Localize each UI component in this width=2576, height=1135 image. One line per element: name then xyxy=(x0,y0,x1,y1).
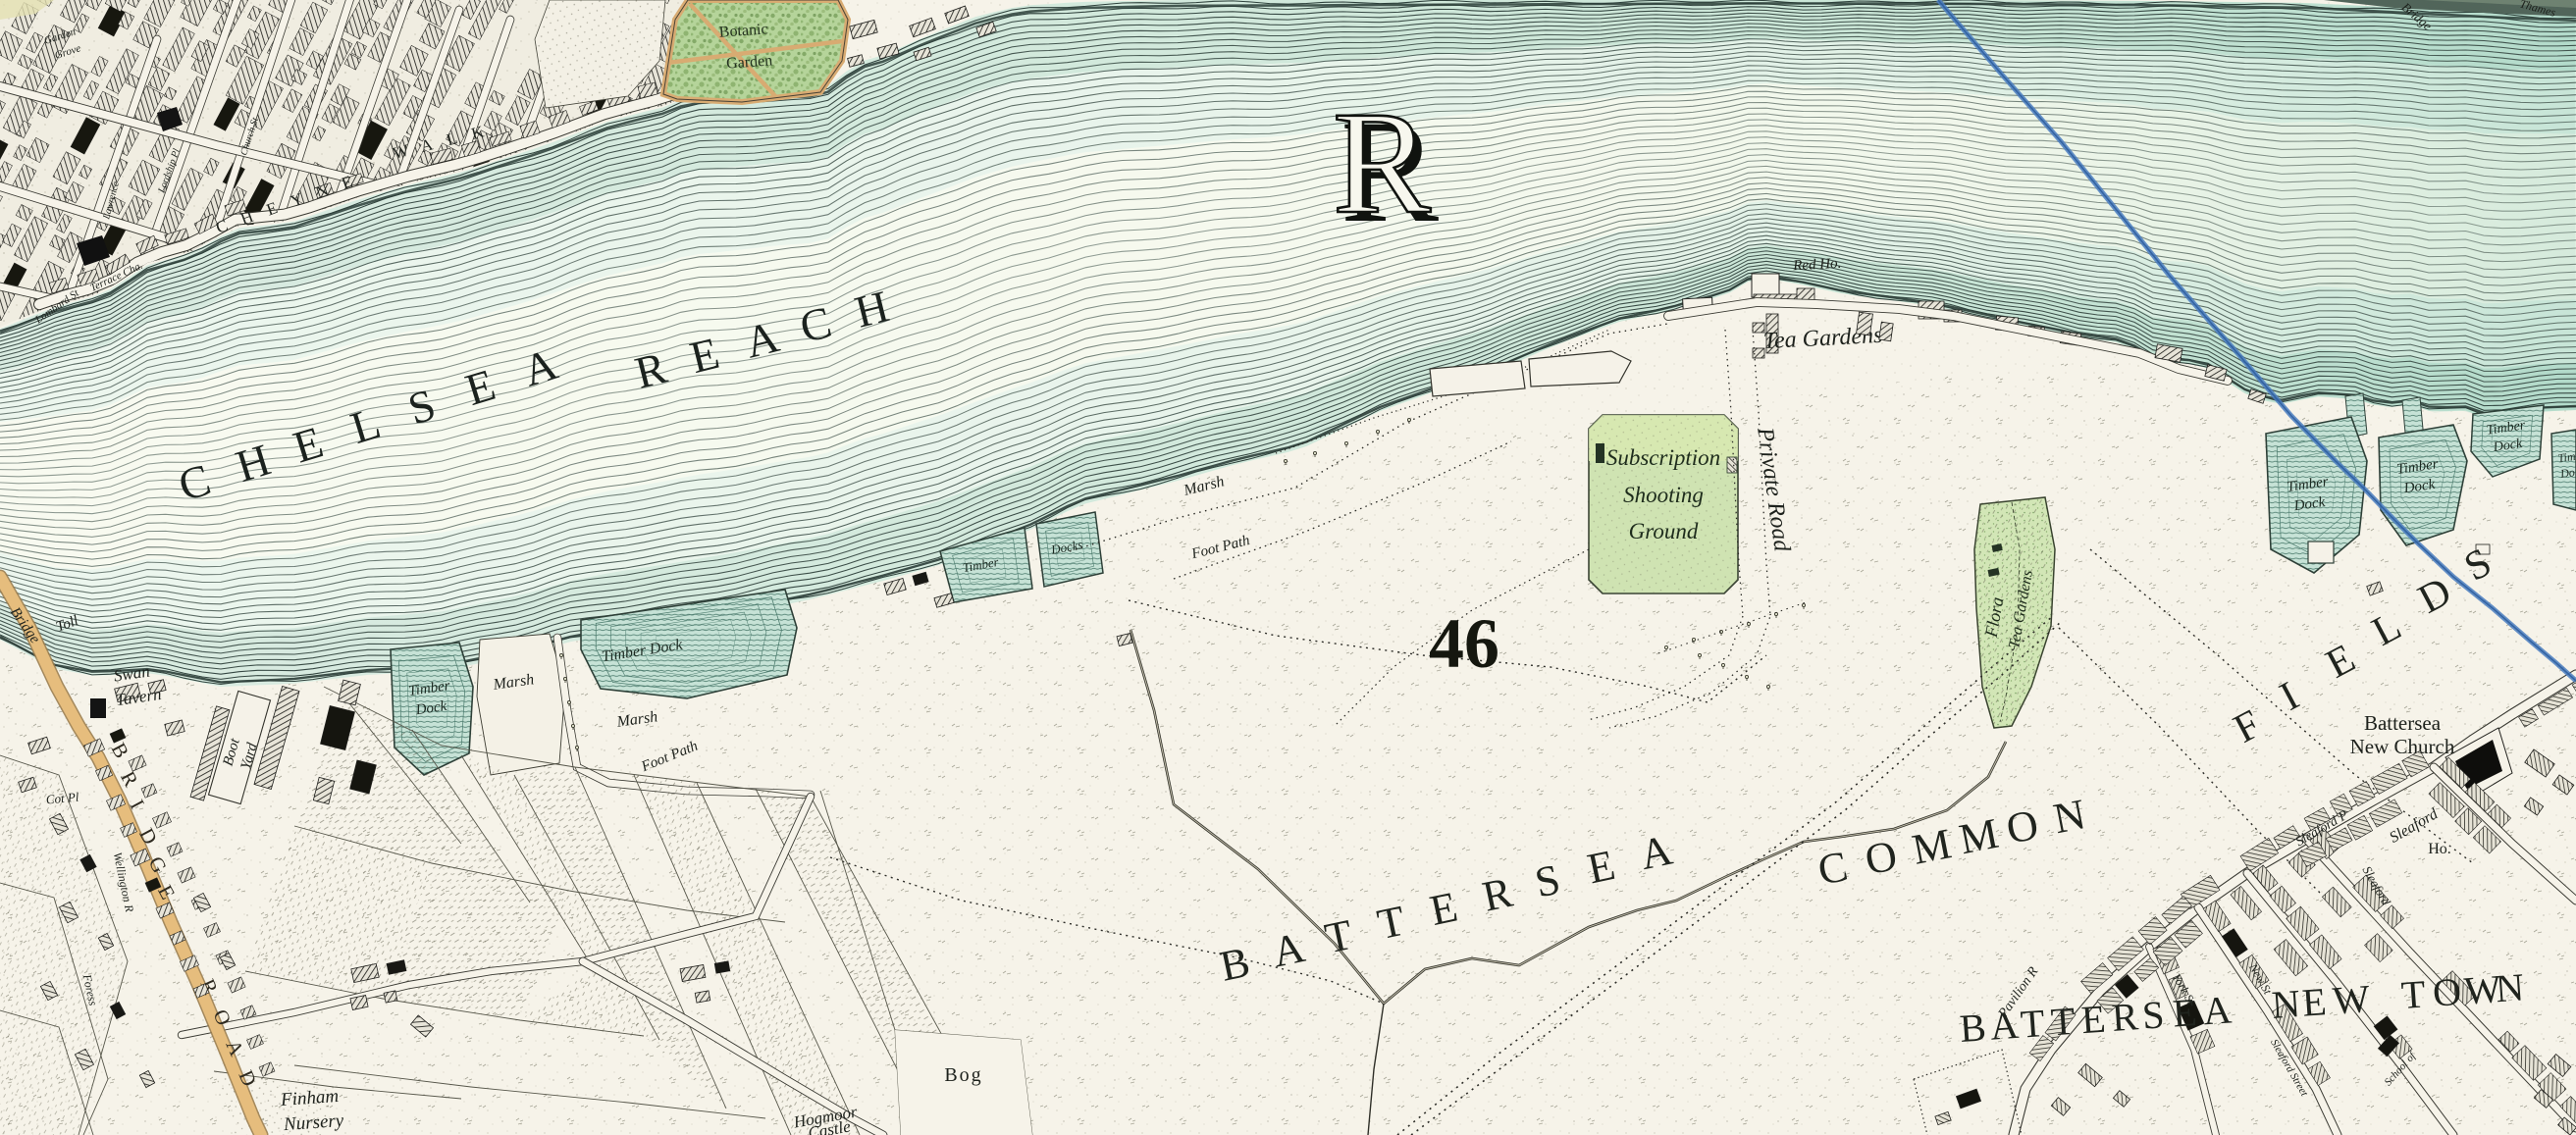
svg-text:R: R xyxy=(2110,994,2139,1040)
svg-text:Cot Pl: Cot Pl xyxy=(45,790,79,807)
svg-text:Subscription: Subscription xyxy=(1606,445,1720,470)
svg-text:T: T xyxy=(2399,971,2427,1017)
svg-text:A: A xyxy=(2201,987,2233,1033)
svg-text:B: B xyxy=(1958,1005,1987,1051)
svg-text:Botanic: Botanic xyxy=(718,21,768,40)
svg-text:Bog: Bog xyxy=(944,1064,982,1086)
svg-text:E: E xyxy=(2171,990,2198,1036)
svg-text:O: O xyxy=(2431,969,2462,1015)
svg-text:A: A xyxy=(1988,1003,2020,1049)
svg-text:Tim: Tim xyxy=(2557,449,2576,465)
svg-text:Do: Do xyxy=(2558,465,2575,481)
svg-text:46: 46 xyxy=(1429,604,1499,683)
svg-text:E: E xyxy=(2079,997,2107,1043)
svg-text:Shooting: Shooting xyxy=(1623,483,1704,507)
svg-text:Red Ho.: Red Ho. xyxy=(1792,256,1842,275)
svg-text:T: T xyxy=(2019,1001,2046,1047)
svg-text:N: N xyxy=(2270,981,2301,1027)
svg-text:Ho.: Ho. xyxy=(2428,841,2451,857)
svg-text:W: W xyxy=(2331,976,2371,1023)
svg-text:T: T xyxy=(2049,999,2077,1045)
svg-text:Battersea: Battersea xyxy=(2364,711,2442,735)
svg-text:New Church: New Church xyxy=(2350,735,2455,758)
svg-text:N: N xyxy=(2494,964,2525,1010)
svg-text:Garden: Garden xyxy=(726,52,773,72)
svg-text:S: S xyxy=(2140,992,2165,1037)
svg-text:E: E xyxy=(2300,979,2328,1025)
svg-text:Finham: Finham xyxy=(279,1086,339,1110)
svg-text:Ground: Ground xyxy=(1629,519,1699,543)
svg-text:R: R xyxy=(1333,81,1431,244)
svg-text:Nursery: Nursery xyxy=(282,1110,344,1135)
